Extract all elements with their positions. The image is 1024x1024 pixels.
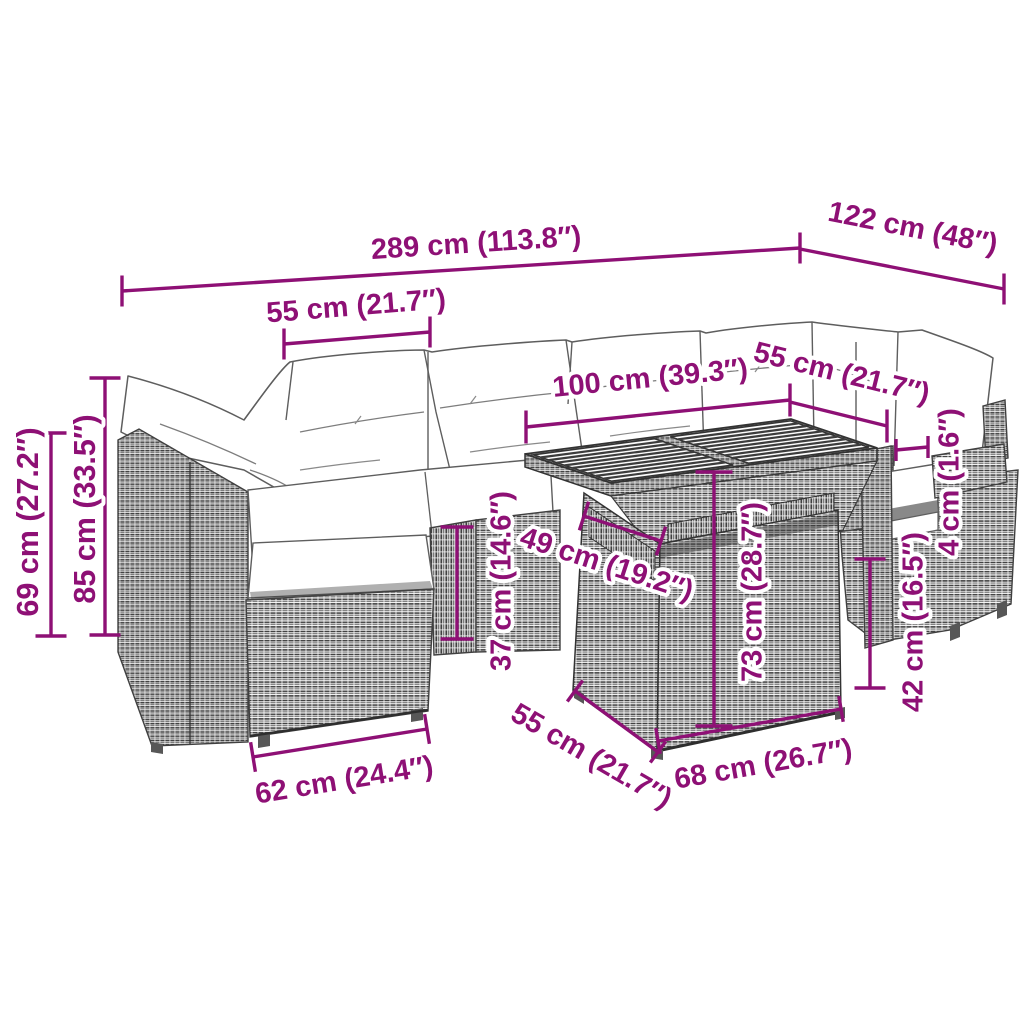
svg-text:62 cm (24.4″): 62 cm (24.4″)	[253, 750, 436, 810]
svg-text:55 cm (21.7″): 55 cm (21.7″)	[265, 283, 447, 329]
svg-text:69 cm (27.2″): 69 cm (27.2″)	[11, 427, 45, 616]
svg-text:37 cm (14.6″): 37 cm (14.6″)	[485, 491, 517, 671]
svg-text:42 cm (16.5″): 42 cm (16.5″)	[897, 532, 929, 712]
svg-text:73 cm (28.7″): 73 cm (28.7″)	[736, 502, 768, 682]
svg-text:289 cm (113.8″): 289 cm (113.8″)	[370, 221, 582, 267]
svg-text:122 cm (48″): 122 cm (48″)	[825, 196, 1000, 261]
svg-text:85 cm (33.5″): 85 cm (33.5″)	[68, 414, 102, 603]
svg-text:4 cm (1.6″): 4 cm (1.6″)	[933, 408, 965, 556]
